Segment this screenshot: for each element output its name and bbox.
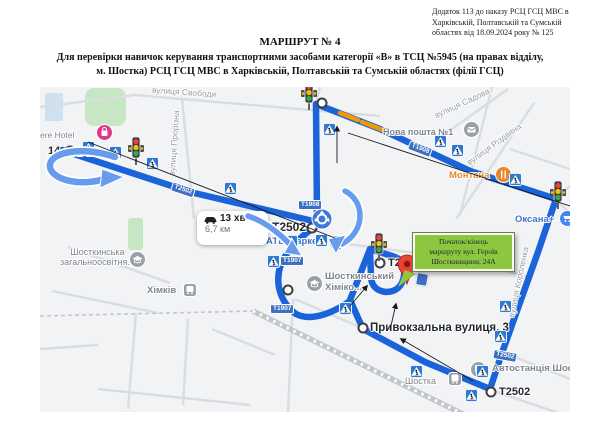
poi-label-college: Шосткинський Хіміко... [325,271,394,293]
traffic-segment [340,113,388,132]
route-title: МАРШРУТ № 4 [0,36,600,48]
pedestrian-crossing-icon [451,144,464,157]
annotation-line: Харківській, Полтавській та Сумській [432,18,598,29]
cart-icon [329,235,345,251]
traffic-light-icon [128,136,144,166]
train-station-icon [448,372,462,386]
college-line1: Шосткинський [325,271,394,282]
park-shape [128,218,143,250]
callout-line: маршруту вул. Героїв [416,247,511,257]
college-icon [306,275,323,292]
pedestrian-crossing-icon [494,330,507,343]
pedestrian-crossing-icon [267,255,280,268]
pedestrian-crossing-icon [339,302,352,315]
route-info-bubble: 13 хв 6,7 км [197,211,268,245]
college-line2: Хіміко... [325,282,362,293]
traffic-light-icon [550,180,566,210]
poi-label-hotel: ere Hotel [40,130,75,140]
pedestrian-crossing-icon [323,123,336,136]
pedestrian-crossing-icon [410,365,423,378]
start-end-callout: Початок/кінець маршруту вул. Героїв Шост… [412,232,515,272]
pedestrian-crossing-icon [82,141,95,154]
route-subtitle: Для перевірки навичок керування транспор… [20,51,580,79]
car-icon [204,214,217,224]
subtitle-line: м. Шостка) РСЦ ГСЦ МВС в Харківській, По… [20,65,580,79]
road-shield: Т1907 [270,304,294,314]
park-shape [85,88,126,126]
road-shield: Т1908 [298,200,322,210]
callout-line: Шосткинщини, 24А [416,257,511,267]
school-line2: загальноосвітня... [60,257,135,267]
traffic-light-icon [371,232,387,262]
pedestrian-crossing-icon [476,365,489,378]
callout-line: Початок/кінець [416,237,511,247]
pedestrian-crossing-icon [315,234,328,247]
poi-label-bus-station: Автостанція Шостка [492,363,570,374]
route-duration: 13 хв [220,213,246,224]
bus-stop-icon [183,283,197,297]
roundabout-icon [311,208,333,230]
pedestrian-crossing-icon [509,173,522,186]
road-shield: Т1907 [280,256,304,266]
school-line1: Шосткинська [70,247,124,257]
store-icon [559,210,570,227]
waypoint-14-label: 14 [48,145,60,157]
annotation-line: Додаток 113 до наказу РСЦ ГСЦ МВС в [432,7,598,18]
pedestrian-crossing-icon [146,157,159,170]
road-number-label: Т2502 [272,220,306,234]
route-distance: 6,7 км [205,224,268,234]
subtitle-line: Для перевірки навичок керування транспор… [20,51,580,65]
document-page: Додаток 113 до наказу РСЦ ГСЦ МВС в Харк… [0,0,600,424]
poi-label-school: Шосткинська загальноосвітня... [60,247,135,267]
pedestrian-crossing-icon [465,389,478,402]
poi-label-oksana: Оксана+ [515,214,554,225]
route-map: вулиця Свободи вулиця Прорізна вулиця Са… [40,87,570,412]
poi-label-montana: Монтана [449,170,489,181]
appendix-annotation: Додаток 113 до наказу РСЦ ГСЦ МВС в Харк… [432,7,598,39]
road-number-label: Т2502 [499,386,530,398]
pedestrian-crossing-icon [285,235,298,248]
poi-label-khimkiv: Хімків [147,285,176,296]
mail-icon [463,121,480,138]
school-icon [129,251,146,268]
shopping-bag-icon [96,124,113,141]
pedestrian-crossing-icon [109,146,122,159]
address-label: Привокзальна вулиця, 3 [370,322,509,334]
pedestrian-crossing-icon [224,182,237,195]
pedestrian-crossing-icon [434,135,447,148]
traffic-light-icon [301,87,317,111]
pedestrian-crossing-icon [499,300,512,313]
